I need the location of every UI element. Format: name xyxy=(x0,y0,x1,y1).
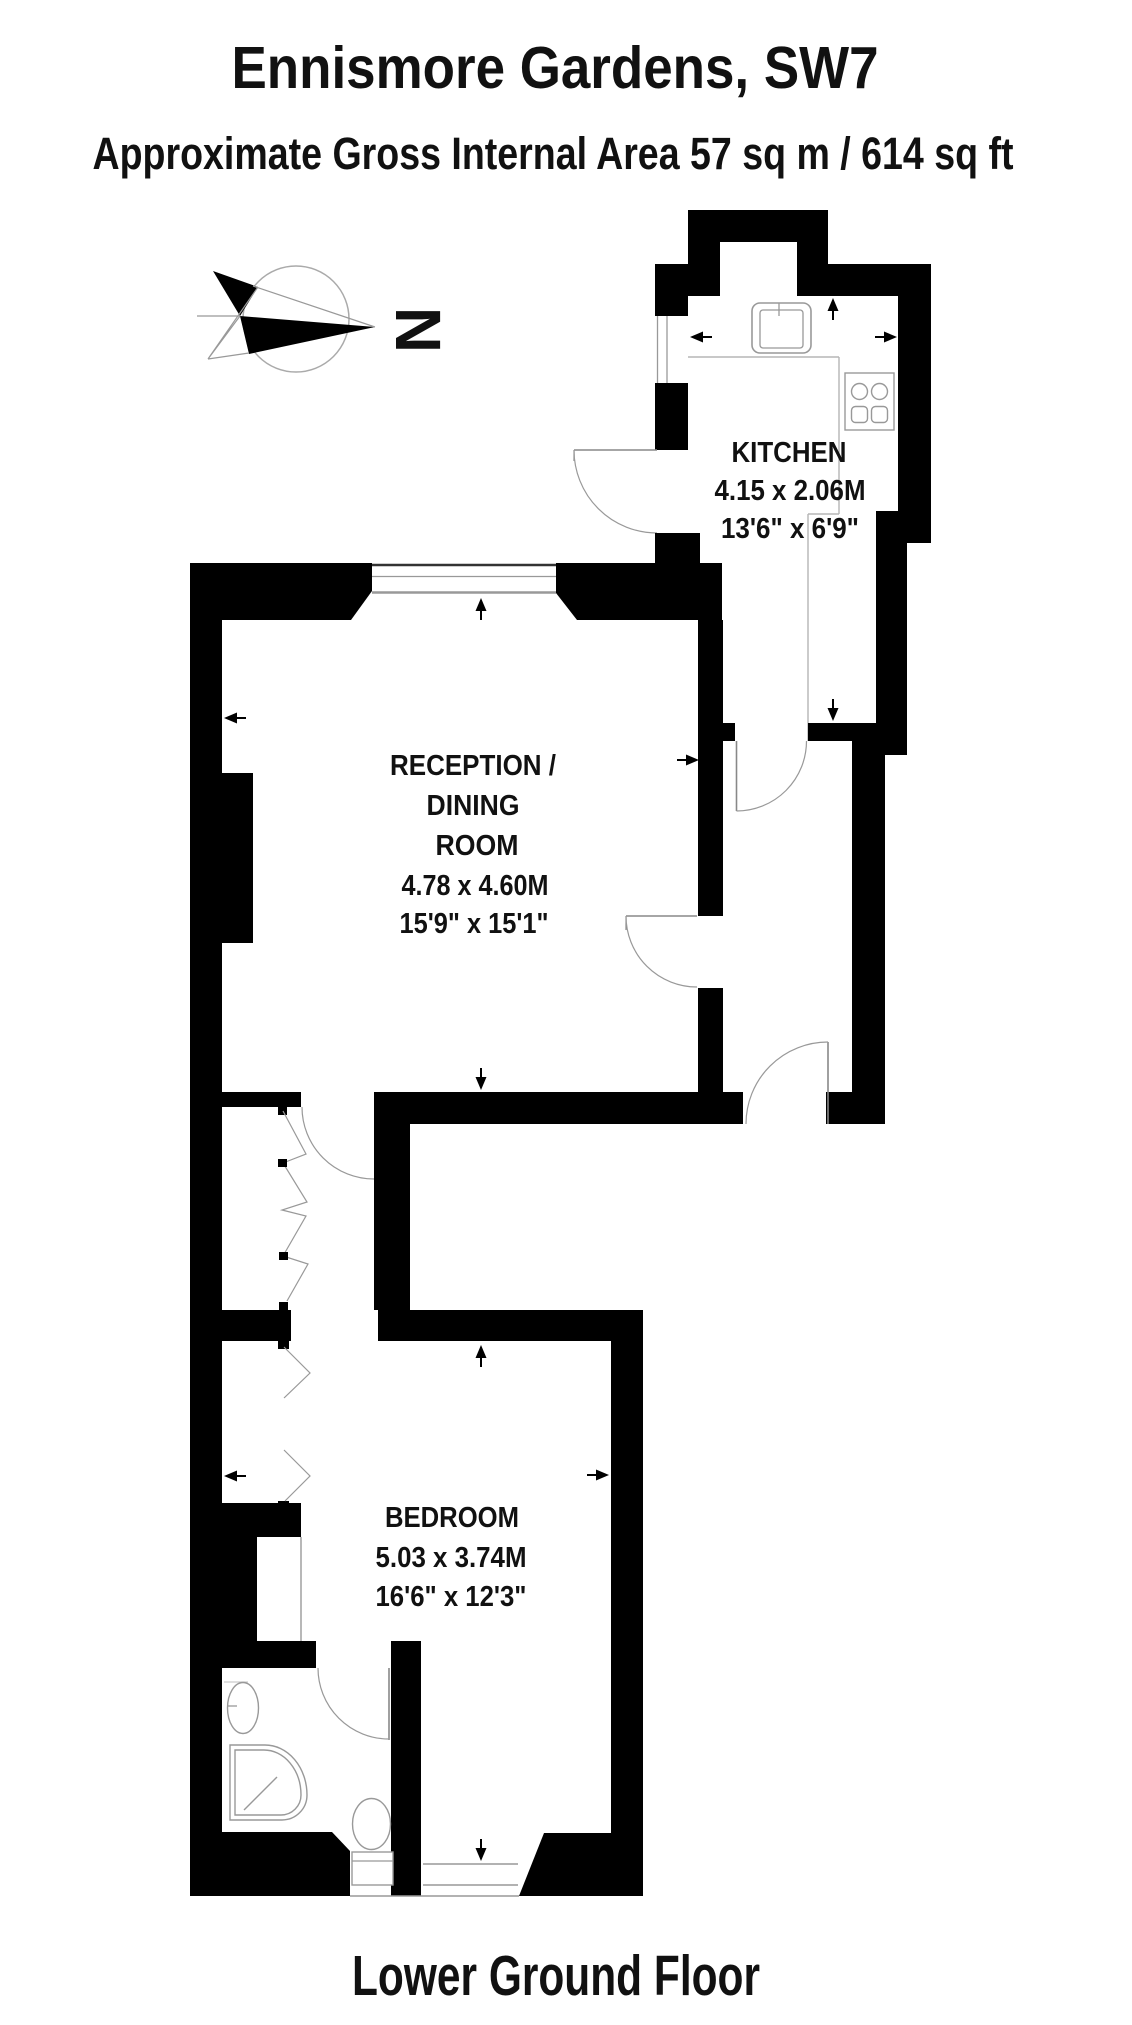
svg-text:16'6" x 12'3": 16'6" x 12'3" xyxy=(376,1581,527,1613)
svg-text:Lower Ground Floor: Lower Ground Floor xyxy=(352,1944,760,2008)
svg-text:Ennismore Gardens, SW7: Ennismore Gardens, SW7 xyxy=(232,35,879,101)
svg-text:13'6" x 6'9": 13'6" x 6'9" xyxy=(721,513,859,545)
svg-text:BEDROOM: BEDROOM xyxy=(385,1502,519,1534)
svg-text:4.15 x 2.06M: 4.15 x 2.06M xyxy=(715,475,866,507)
svg-text:5.03 x 3.74M: 5.03 x 3.74M xyxy=(376,1542,527,1574)
svg-text:RECEPTION /: RECEPTION / xyxy=(390,750,556,782)
svg-text:Approximate Gross Internal Are: Approximate Gross Internal Area 57 sq m … xyxy=(93,128,1014,179)
svg-text:ROOM: ROOM xyxy=(436,830,519,862)
svg-text:N: N xyxy=(382,307,454,353)
svg-text:4.78 x 4.60M: 4.78 x 4.60M xyxy=(402,870,549,902)
svg-text:DINING: DINING xyxy=(427,790,520,822)
svg-text:15'9" x 15'1": 15'9" x 15'1" xyxy=(400,908,549,940)
svg-text:KITCHEN: KITCHEN xyxy=(732,437,847,469)
